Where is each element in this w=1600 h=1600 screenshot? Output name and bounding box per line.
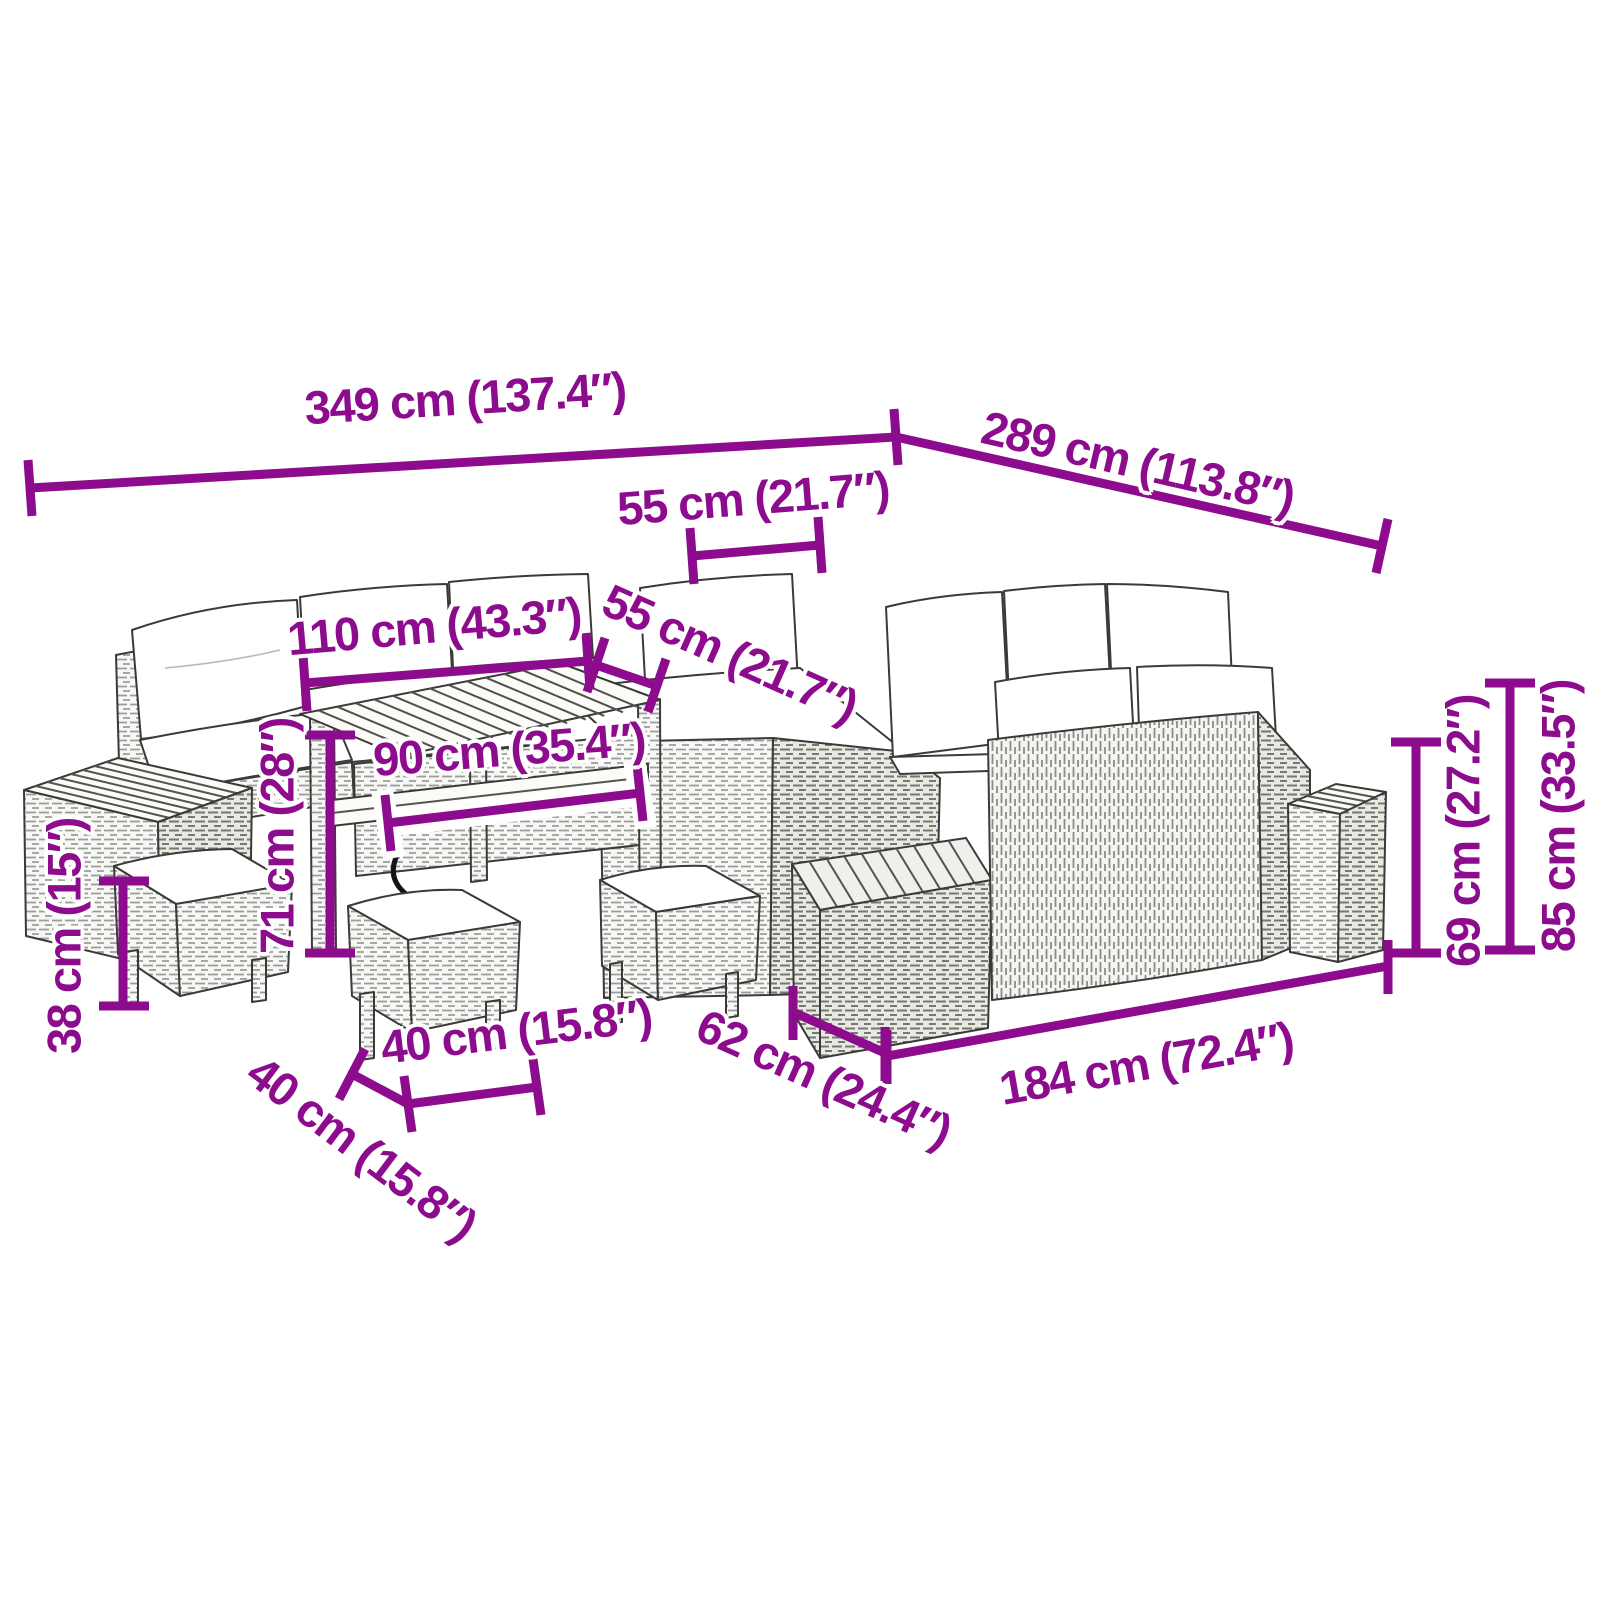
dim-line-back-seat [692, 545, 820, 556]
dim-line-stool-width [408, 1087, 537, 1104]
dim-line-table-length [305, 661, 588, 683]
dim-line-side-seat [596, 665, 657, 686]
dim-label-backrest-height: 69 cm (27.2″) [1440, 695, 1487, 967]
dim-label-table-height: 71 cm (28″) [254, 718, 301, 954]
dim-line-stool-depth [352, 1074, 408, 1104]
dimension-diagram: 349 cm (137.4″) 289 cm (113.8″) 55 cm (2… [0, 0, 1600, 1600]
dim-label-stool-height: 38 cm (15″) [41, 818, 88, 1054]
dim-label-total-height: 85 cm (33.5″) [1535, 680, 1582, 952]
dimension-lines [0, 0, 1600, 1600]
